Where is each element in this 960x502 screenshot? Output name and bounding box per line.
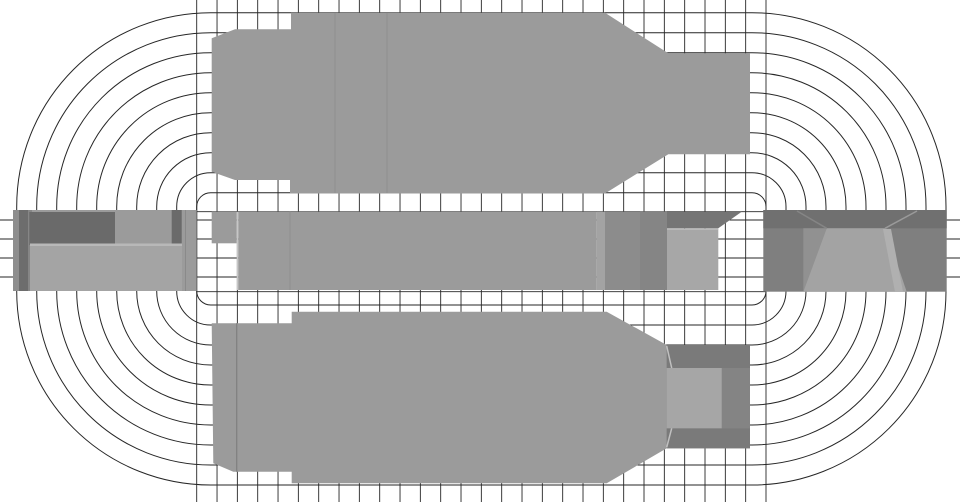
center-bar [238,212,596,290]
solid-core-parts [13,13,947,484]
right-terminal-top-wall [763,210,946,228]
fem-mesh-diagram [0,0,960,502]
center-bar-step [212,212,237,244]
center-bar-gap [237,212,239,290]
center-socket-floor [667,228,718,290]
left-terminal-wall-top [29,212,115,245]
left-terminal-groove [19,210,28,291]
lower-socket-right-wall [722,368,750,428]
left-terminal-floor [30,246,182,291]
upper-yoke-body [212,13,750,194]
left-terminal-wall-right [172,210,182,245]
left-terminal-floor-edge [30,244,182,247]
mesh-diagram-stage [0,0,960,502]
left-terminal-edge-shade [13,210,19,291]
lower-socket-floor [667,368,722,428]
center-bar-end-shade [640,212,667,290]
center-bar-light-strip [597,212,605,290]
lower-socket-bottom-wall [667,428,750,448]
lower-socket-top-wall [667,345,750,368]
